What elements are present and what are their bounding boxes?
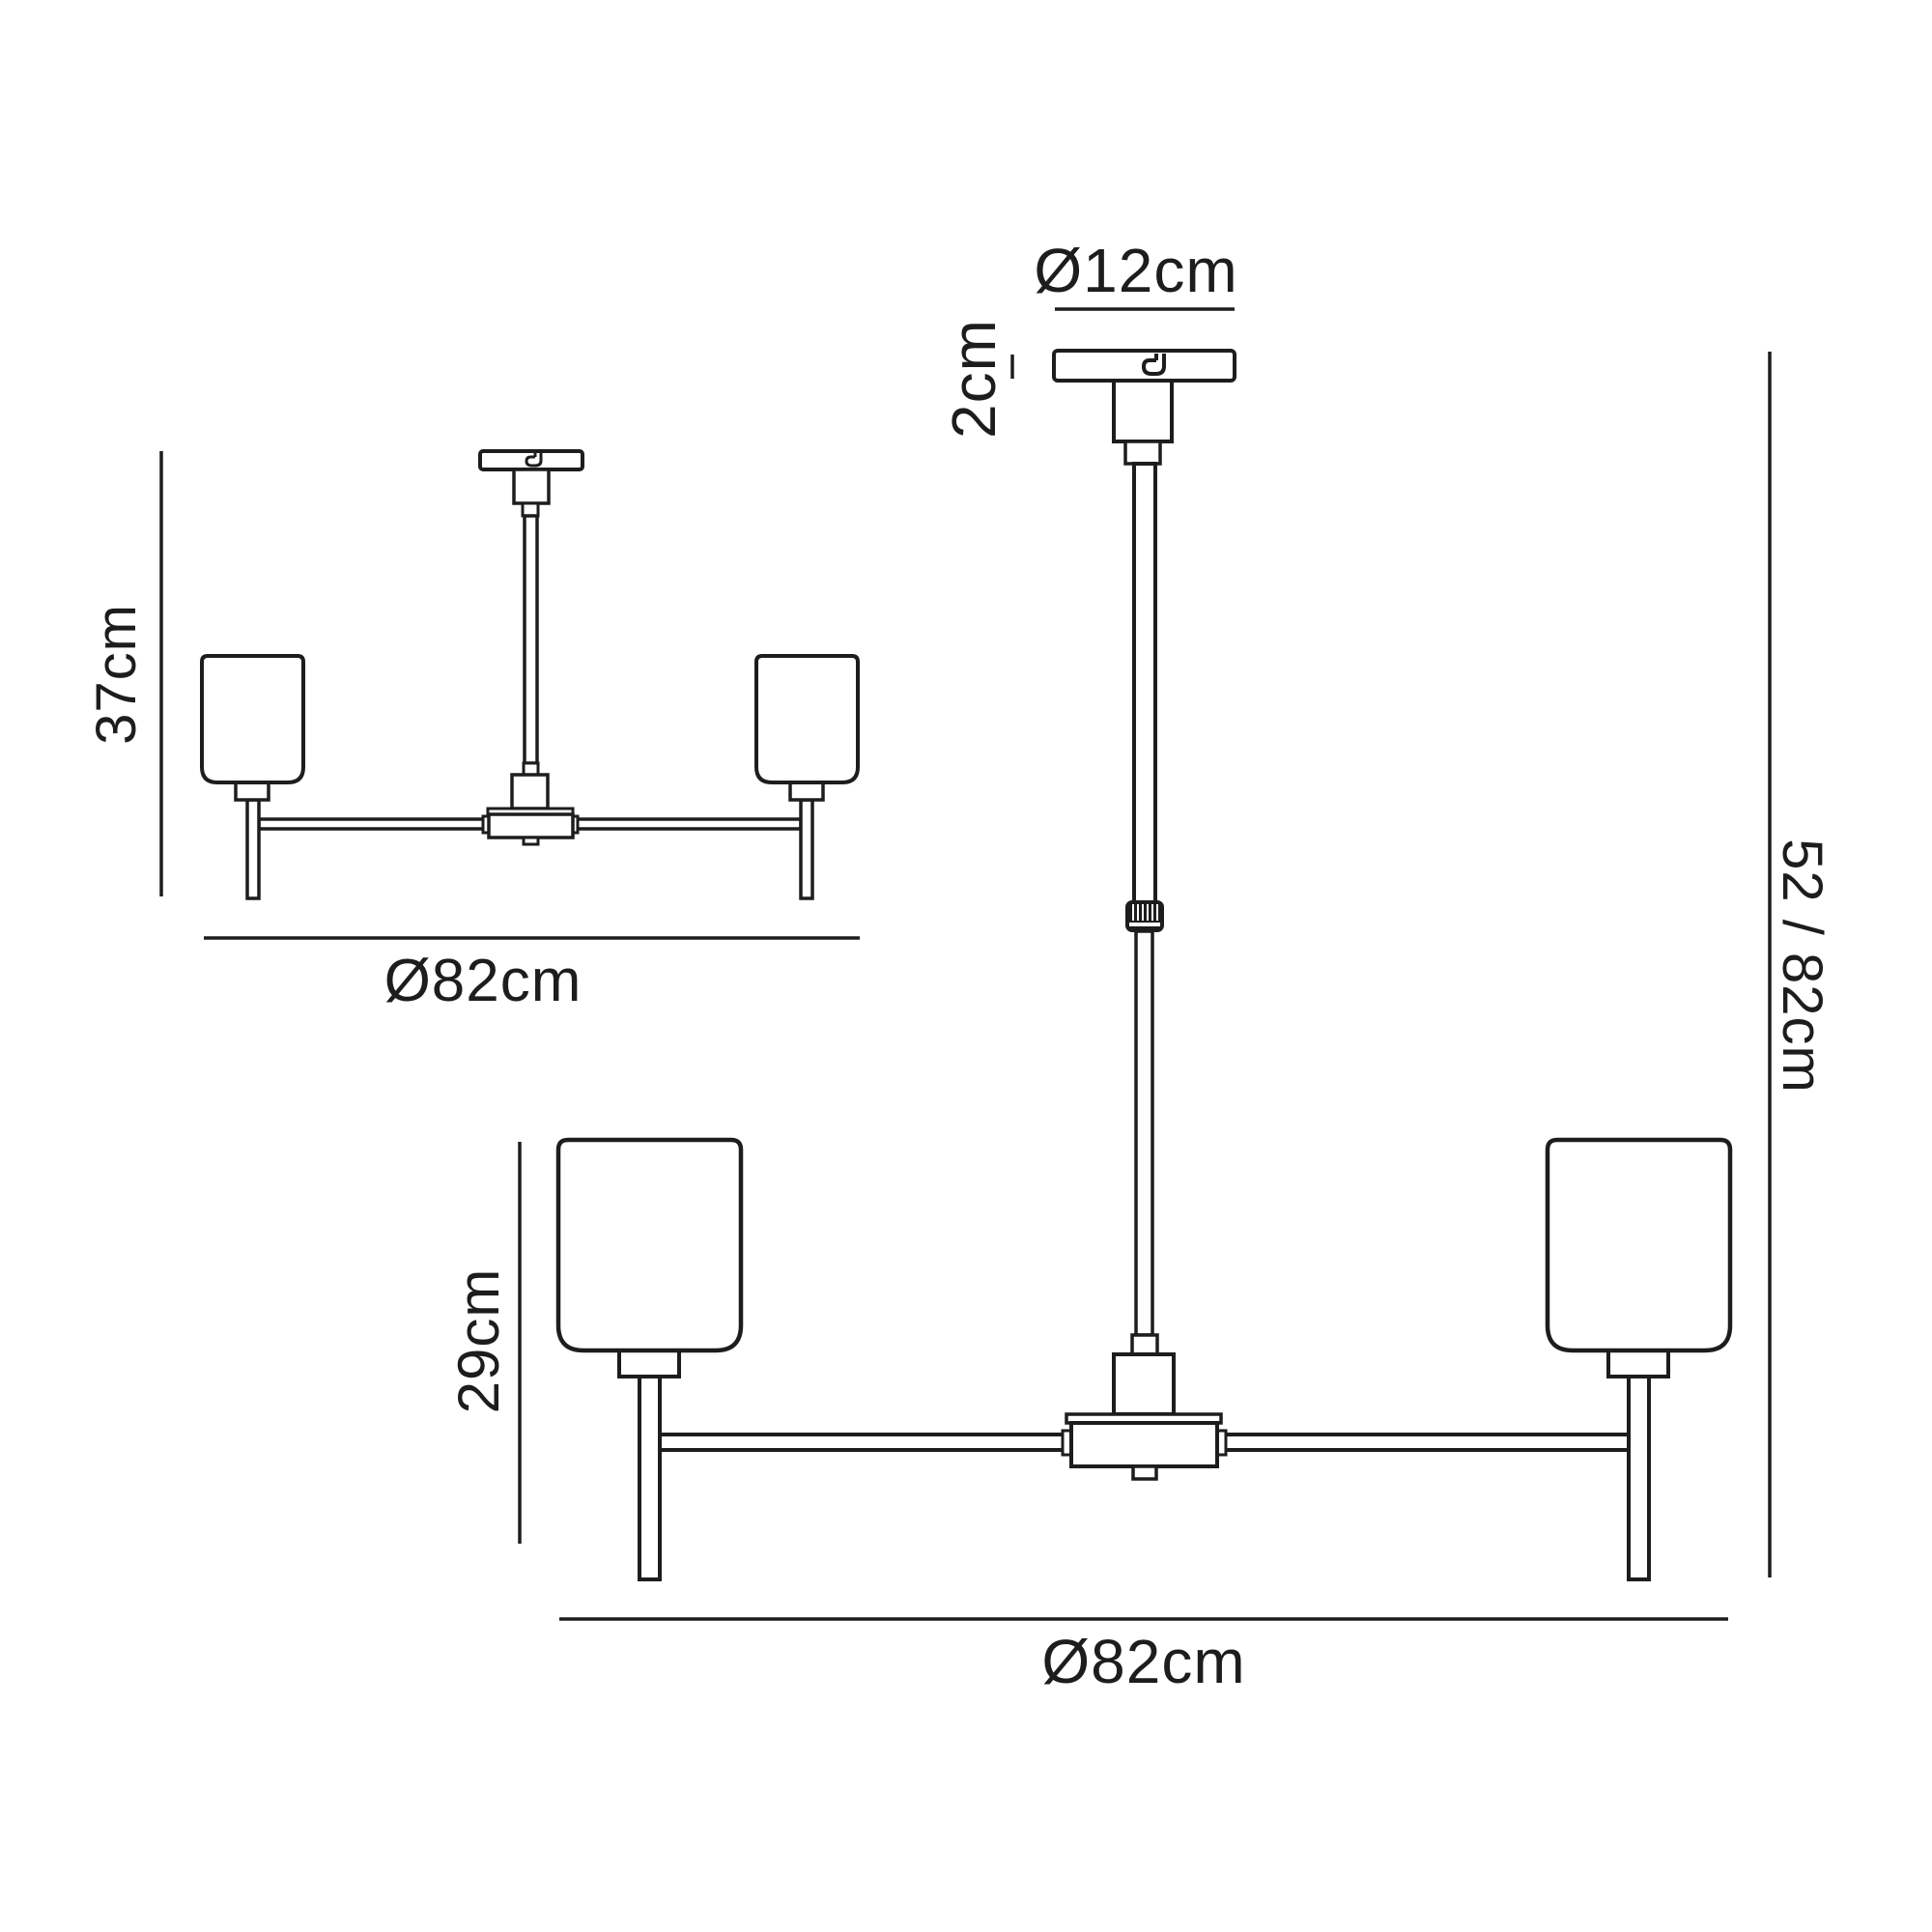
hub-finial <box>524 838 538 844</box>
large-view: Ø12cm 2cm 52 / 82cm 29cm <box>446 236 1833 1696</box>
right-lamp-holder <box>790 782 823 800</box>
center-hub <box>489 814 573 838</box>
canopy-neck <box>1125 441 1160 464</box>
left-lamp-stem <box>247 800 259 898</box>
hub-body <box>512 775 548 809</box>
left-lamp-shade <box>202 656 303 782</box>
hub-neck <box>524 763 538 775</box>
canopy-neck <box>523 503 538 516</box>
rod-connector <box>1126 901 1163 931</box>
hub-finial <box>1133 1466 1156 1479</box>
small-width-dimension-label: Ø82cm <box>384 948 582 1014</box>
light-fixture-dimension-diagram: 37cm Ø82cm <box>0 0 1932 1932</box>
right-lamp-stem <box>801 800 812 898</box>
left-lamp-holder <box>619 1350 679 1377</box>
small-view: 37cm Ø82cm <box>85 451 860 1014</box>
hub-body <box>1114 1354 1174 1414</box>
canopy-height-label: 2cm <box>939 319 1009 439</box>
hub-neck <box>1132 1335 1157 1354</box>
canopy-block <box>514 469 549 503</box>
drop-height-dimension-label: 52 / 82cm <box>1771 838 1833 1094</box>
right-lamp-shade <box>756 656 858 782</box>
canopy-block <box>1114 381 1172 441</box>
left-lamp-shade <box>558 1140 741 1350</box>
hanging-rod <box>525 516 537 763</box>
right-lamp-stem <box>1629 1377 1649 1579</box>
right-lamp-holder <box>1608 1350 1668 1377</box>
center-hub <box>1071 1423 1217 1466</box>
hanging-rod-upper <box>1134 464 1155 903</box>
canopy-diameter-label: Ø12cm <box>1034 236 1237 305</box>
hanging-rod-lower <box>1136 931 1152 1335</box>
left-lamp-stem <box>639 1377 660 1579</box>
shade-height-dimension-label: 29cm <box>446 1268 511 1414</box>
small-height-dimension-label: 37cm <box>85 604 148 745</box>
left-lamp-holder <box>236 782 269 800</box>
large-width-dimension-label: Ø82cm <box>1041 1627 1245 1696</box>
dimension-diagram-page: 37cm Ø82cm <box>0 0 1932 1932</box>
right-lamp-shade <box>1548 1140 1730 1350</box>
